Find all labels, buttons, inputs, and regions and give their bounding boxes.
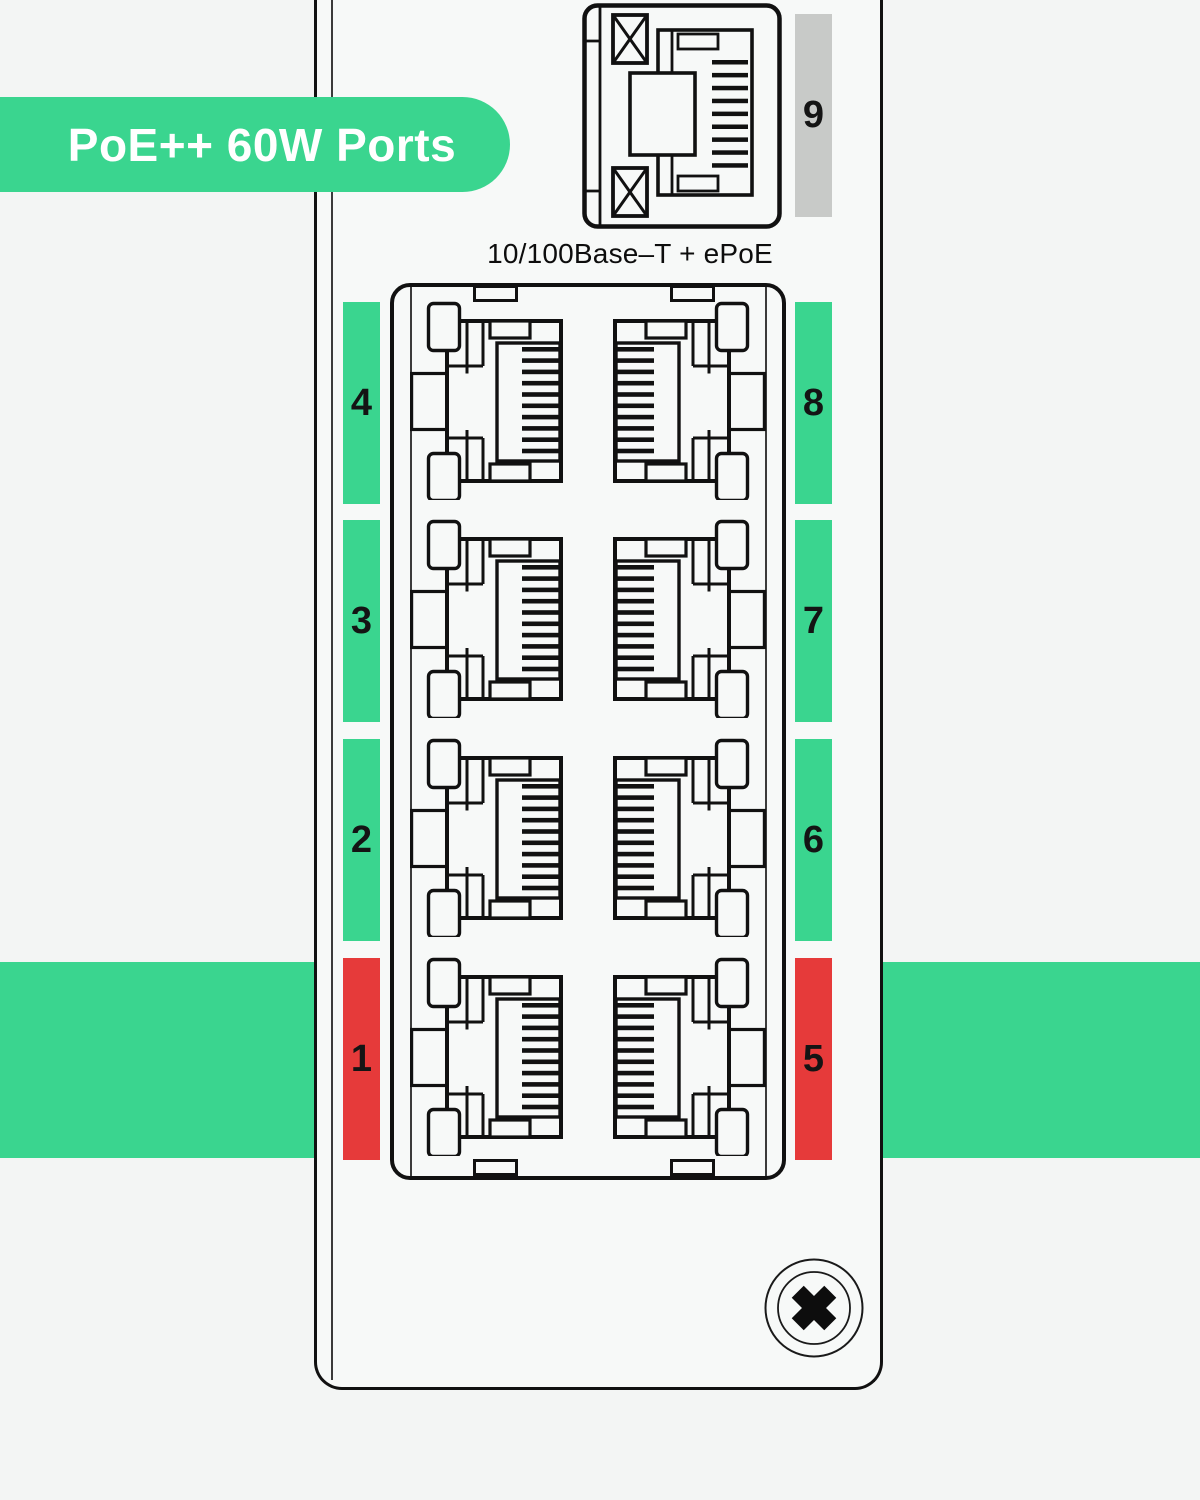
port-5-number: 5 bbox=[803, 1038, 824, 1081]
screw-icon bbox=[759, 1253, 869, 1363]
uplink-caption: 10/100Base–T + ePoE bbox=[440, 238, 820, 270]
port-6-label-bar: 6 bbox=[795, 739, 832, 941]
rj45-port-9-icon bbox=[582, 3, 782, 229]
rj45-port-1-icon bbox=[410, 946, 563, 1156]
port-2-number: 2 bbox=[351, 819, 372, 862]
block-notch bbox=[473, 1159, 518, 1176]
port-3-number: 3 bbox=[351, 600, 372, 643]
port-6-number: 6 bbox=[803, 819, 824, 862]
rj45-port-5-icon bbox=[613, 946, 766, 1156]
port-1-label-bar: 1 bbox=[343, 958, 380, 1160]
port-4-label-bar: 4 bbox=[343, 302, 380, 504]
port-9-label-bar: 9 bbox=[795, 14, 832, 217]
rj45-port-8-icon bbox=[613, 290, 766, 500]
port-2-label-bar: 2 bbox=[343, 739, 380, 941]
rj45-port-6-icon bbox=[613, 727, 766, 937]
port-4-number: 4 bbox=[351, 382, 372, 425]
rj45-port-4-icon bbox=[410, 290, 563, 500]
rj45-port-7-icon bbox=[613, 508, 766, 718]
port-7-number: 7 bbox=[803, 600, 824, 643]
poe-badge-label: PoE++ 60W Ports bbox=[68, 118, 456, 172]
rj45-port-3-icon bbox=[410, 508, 563, 718]
port-9-number: 9 bbox=[803, 94, 824, 137]
port-8-label-bar: 8 bbox=[795, 302, 832, 504]
port-1-number: 1 bbox=[351, 1038, 372, 1081]
port-7-label-bar: 7 bbox=[795, 520, 832, 722]
rj45-port-2-icon bbox=[410, 727, 563, 937]
poe-switch-diagram: 9 10/100Base–T + ePoE 4 3 2 1 8 7 6 5 Po… bbox=[0, 0, 1200, 1500]
block-notch bbox=[670, 1159, 715, 1176]
faceplate-edge-line bbox=[331, 0, 333, 1380]
poe-badge: PoE++ 60W Ports bbox=[0, 97, 510, 192]
port-3-label-bar: 3 bbox=[343, 520, 380, 722]
port-5-label-bar: 5 bbox=[795, 958, 832, 1160]
port-8-number: 8 bbox=[803, 382, 824, 425]
